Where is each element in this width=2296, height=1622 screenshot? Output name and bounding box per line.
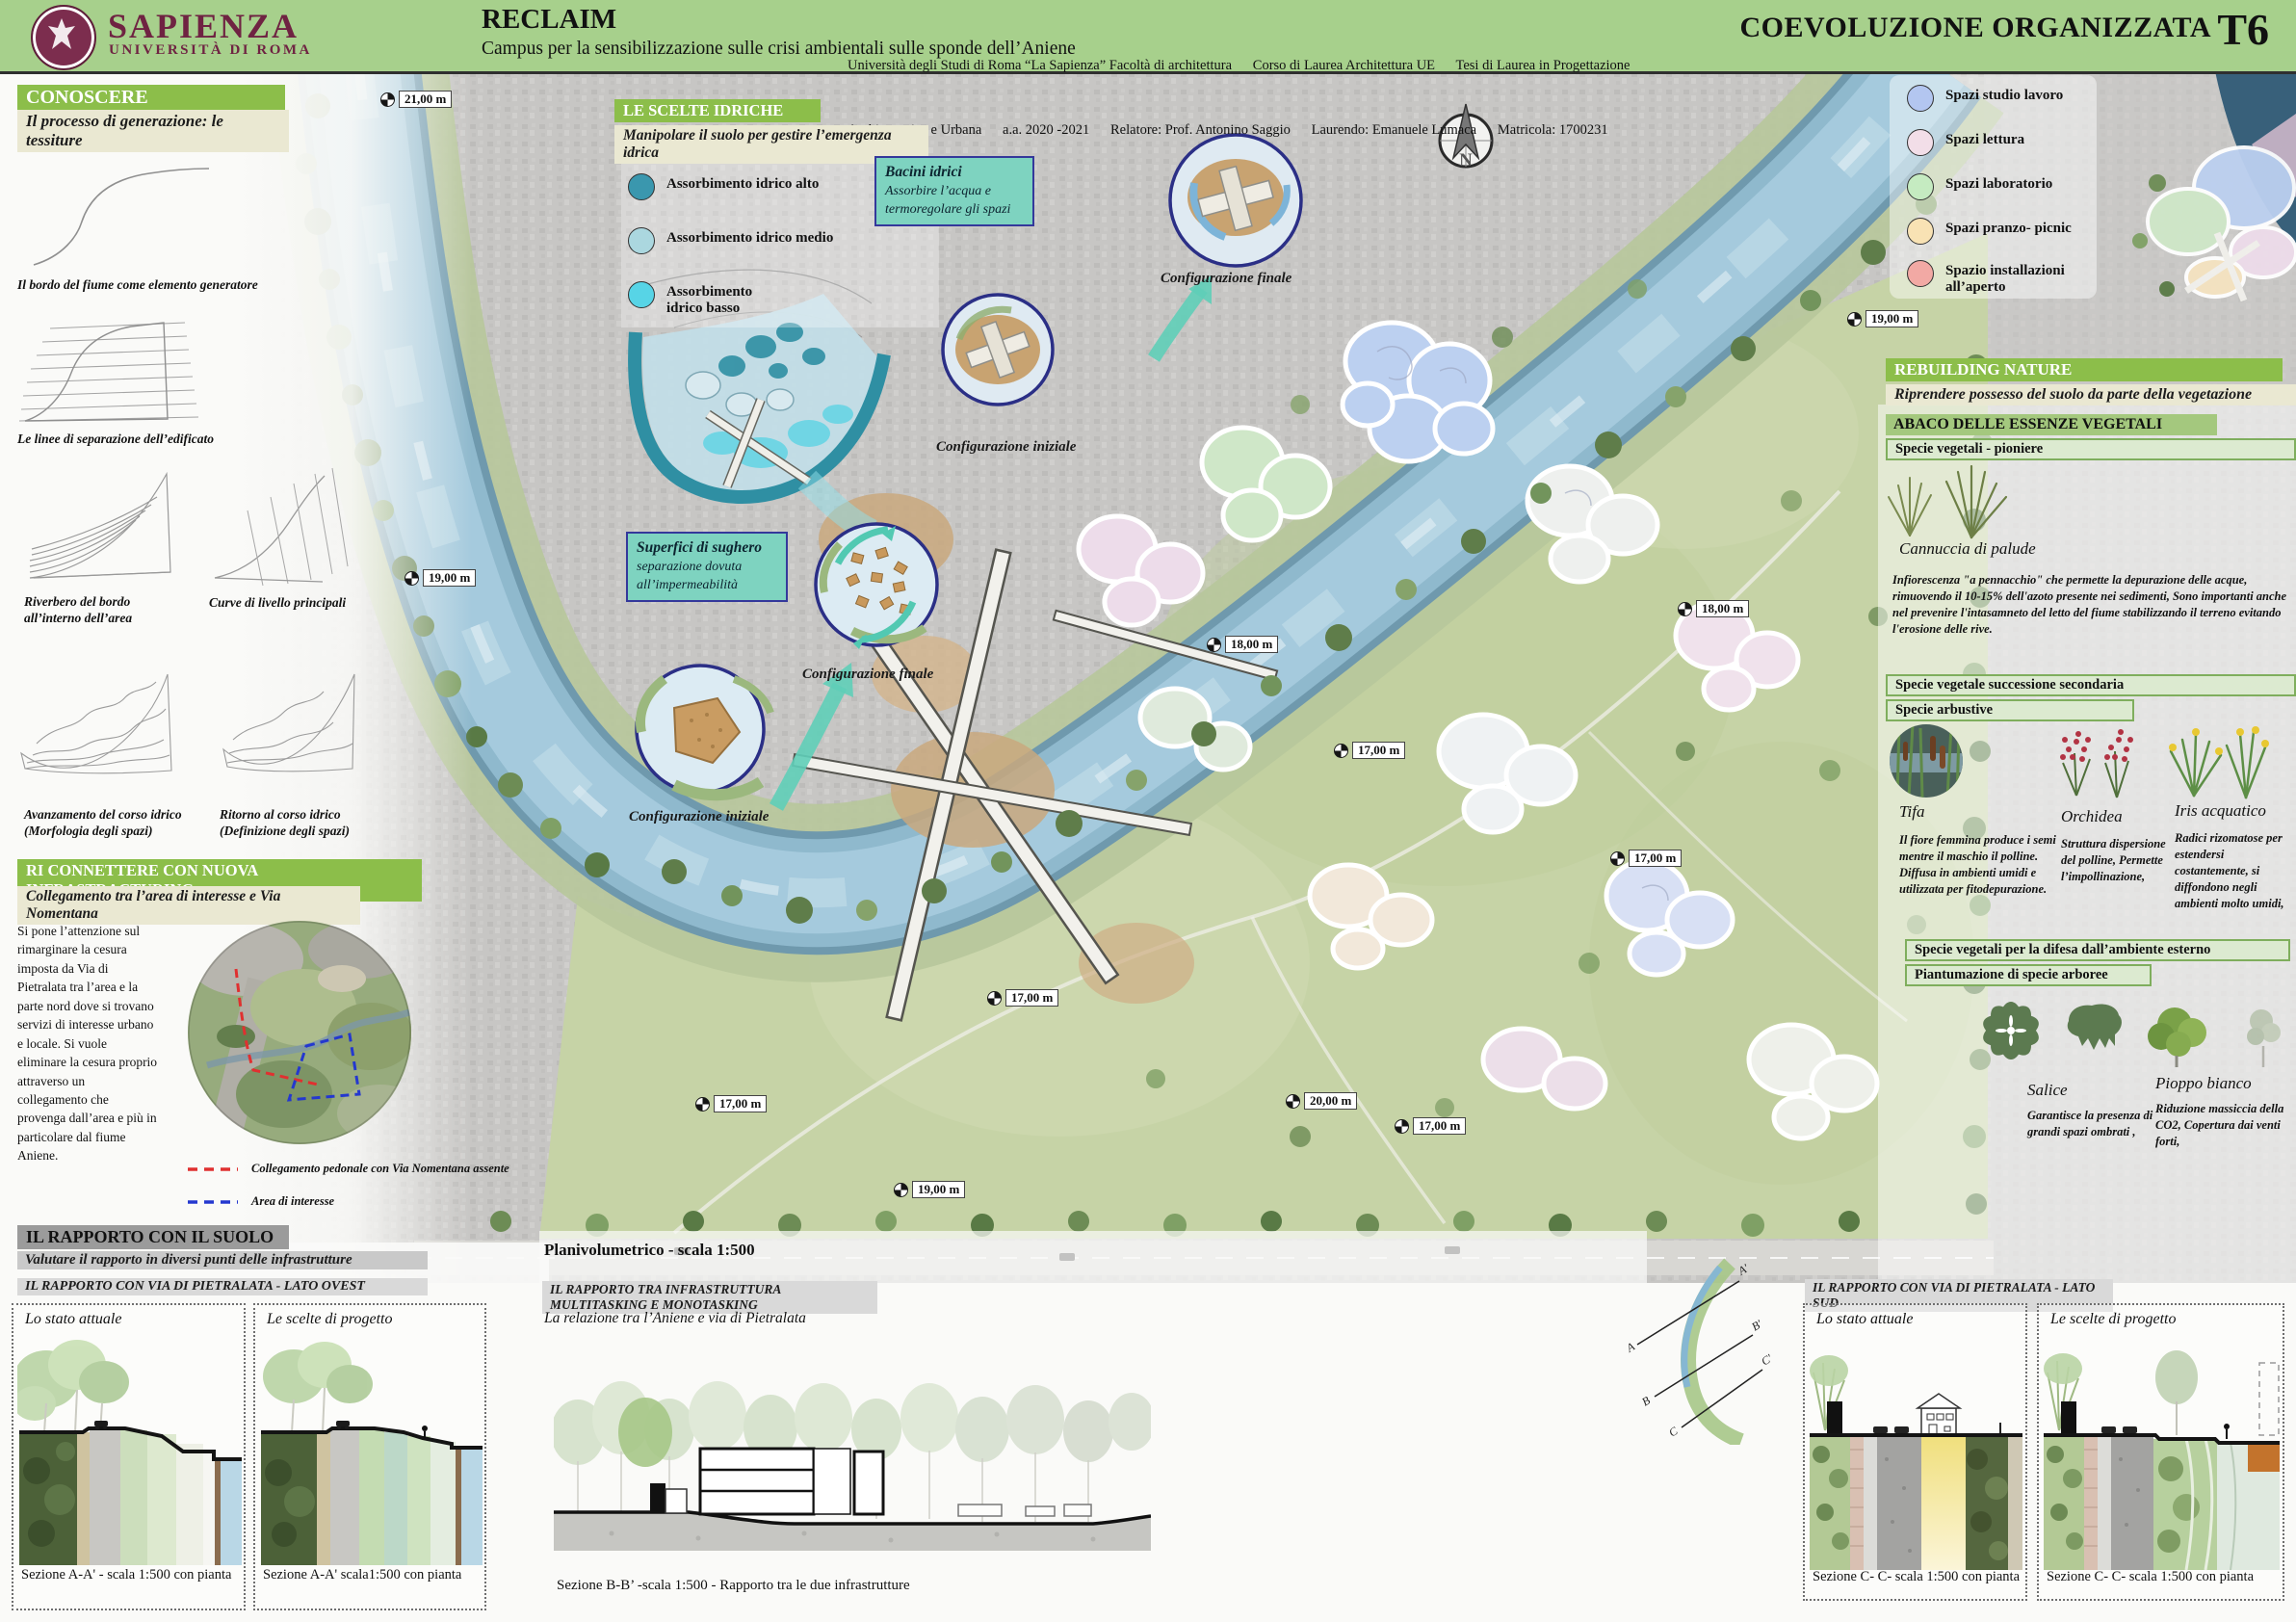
survey-point-icon: [987, 991, 1002, 1006]
elevation-marker: 18,00 m: [1207, 636, 1278, 653]
tree-name: Salice: [2027, 1081, 2068, 1100]
credits-line2: Architettonica e Urbana a.a. 2020 -2021 …: [848, 119, 1630, 141]
config-circle-basin-initial: [943, 295, 1053, 405]
legend-spazi-laboratorio: Spazi laboratorio: [1907, 173, 2052, 200]
section-box-cc-project: Le scelte di progetto: [2037, 1303, 2284, 1601]
header-bar: SAPIENZA UNIVERSITÀ DI ROMA RECLAIM Camp…: [0, 0, 2296, 74]
legend-absorption-high: Assorbimento idrico alto: [628, 173, 819, 200]
legend-area-of-interest: Area di interesse: [188, 1194, 334, 1209]
elevation-marker: 17,00 m: [1610, 850, 1682, 867]
high-absorption-dot-icon: [628, 173, 655, 200]
svg-text:C: C: [1666, 1424, 1681, 1440]
sketch-label: Ritorno al corso idrico (Definizione deg…: [220, 807, 378, 840]
soil-relation-title: IL RAPPORTO CON IL SUOLO: [17, 1225, 289, 1249]
sketch-label: Avanzamento del corso idrico (Morfologia…: [24, 807, 207, 840]
iris-plant-icon: [2165, 724, 2271, 799]
orchidea-plant-icon: [2051, 724, 2143, 799]
connect-body-text: Si pone l’attenzione sul rimarginare la …: [17, 922, 158, 1165]
connect-section-subtitle: Collegamento tra l’area di interesse e V…: [17, 886, 360, 925]
config-label: Configurazione finale: [802, 667, 956, 683]
sketch-separation-lines: [12, 313, 214, 427]
legend-spazi-lettura: Spazi lettura: [1907, 129, 2024, 156]
legend-absorption-medium: Assorbimento idrico medio: [628, 227, 833, 254]
species-name: Orchidea: [2061, 807, 2123, 826]
logo-wordmark: SAPIENZA: [108, 6, 299, 46]
medium-absorption-dot-icon: [628, 227, 655, 254]
svg-text:B': B': [1749, 1317, 1764, 1333]
config-label: Configurazione finale: [1161, 271, 1324, 287]
survey-point-icon: [1334, 744, 1348, 758]
section-box-aa-state: Lo stato attuale Sezione A-A' - scala 1:…: [12, 1303, 246, 1610]
survey-point-icon: [380, 92, 395, 107]
pranzo-dot-icon: [1907, 218, 1934, 245]
center-subtitle: La relazione tra l’Aniene e via di Pietr…: [544, 1310, 806, 1327]
tifa-photo-icon: [1890, 724, 1963, 798]
sketch-reverb: [24, 464, 180, 588]
bacini-idrici-box: Bacini idrici Assorbire l’acqua e termor…: [874, 156, 1034, 226]
center-caption: Sezione B-B’ -scala 1:500 - Rapporto tra…: [557, 1578, 910, 1594]
shrub-title: Specie arbustive: [1886, 699, 2134, 721]
board-title: COEVOLUZIONE ORGANIZZATA: [1739, 12, 2211, 44]
sketch-water-advance: [17, 667, 179, 780]
elevation-marker: 17,00 m: [987, 989, 1058, 1007]
species-name: Tifa: [1899, 802, 1924, 822]
section-key-diagram: A B C A' B' C': [1626, 1252, 1780, 1445]
project-title: RECLAIM: [482, 4, 616, 36]
legend-spazi-studio: Spazi studio lavoro: [1907, 85, 2063, 112]
elevation-marker: 19,00 m: [404, 569, 476, 587]
laboratorio-dot-icon: [1907, 173, 1934, 200]
survey-point-icon: [1847, 312, 1862, 327]
lettura-dot-icon: [1907, 129, 1934, 156]
soil-relation-subtitle: Valutare il rapporto in diversi punti de…: [17, 1251, 428, 1269]
config-label: Configurazione iniziale: [629, 809, 793, 825]
installazioni-dot-icon: [1907, 260, 1934, 287]
survey-point-icon: [404, 571, 419, 586]
abaco-title: ABACO DELLE ESSENZE VEGETALI: [1886, 414, 2217, 435]
svg-text:C': C': [1759, 1351, 1775, 1369]
elevation-marker: 17,00 m: [1334, 742, 1405, 759]
species-desc: Radici rizomatose per estendersi costant…: [2175, 830, 2290, 911]
tree-species-icons: [1972, 992, 2290, 1069]
elevation-marker: 17,00 m: [695, 1095, 767, 1112]
svg-text:A: A: [1626, 1339, 1637, 1355]
sketch-river-edge: [24, 164, 217, 272]
pioneer-title: Specie vegetali - pioniere: [1886, 438, 2296, 460]
section-drawing-cc-state: [1808, 1334, 2024, 1575]
sughero-box: Superfici di sughero separazione dovuta …: [626, 532, 788, 602]
aerial-inset-circle: [188, 921, 411, 1144]
west-title: IL RAPPORTO CON VIA DI PIETRALATA - LATO…: [17, 1278, 428, 1295]
survey-point-icon: [695, 1097, 710, 1112]
planting-title: Piantumazione di specie arboree: [1905, 964, 2152, 986]
section-drawing-aa-project: [259, 1336, 484, 1567]
legend-absorption-low: Assorbimento idrico basso: [628, 281, 782, 317]
cannuccia-plant-icon: [1883, 464, 2018, 539]
legend-spazio-installazioni: Spazio installazioni all’aperto: [1907, 260, 2090, 296]
survey-point-icon: [1610, 851, 1625, 866]
elevation-marker: 19,00 m: [1847, 310, 1918, 327]
cannuccia-desc: Infiorescenza "a pennacchio" che permett…: [1892, 572, 2295, 638]
elevation-marker: 17,00 m: [1395, 1117, 1466, 1135]
survey-point-icon: [1286, 1094, 1300, 1109]
svg-text:B: B: [1639, 1393, 1653, 1408]
cannuccia-name: Cannuccia di palude: [1899, 539, 2036, 559]
elevation-marker: 18,00 m: [1678, 600, 1749, 617]
section-drawing-bb: [554, 1341, 1151, 1570]
survey-point-icon: [1678, 602, 1692, 616]
survey-point-icon: [894, 1183, 908, 1197]
low-absorption-dot-icon: [628, 281, 655, 308]
credits-line1: Università degli Studi di Roma “La Sapie…: [848, 55, 1630, 76]
elevation-marker: 20,00 m: [1286, 1092, 1357, 1110]
sapienza-logo: [31, 5, 96, 70]
species-name: Iris acquatico: [2175, 801, 2266, 821]
section-drawing-aa-state: [17, 1336, 244, 1567]
presentation-board: N SAPIENZA: [0, 0, 2296, 1622]
plan-title: Planivolumetrico - scala 1:500: [544, 1241, 755, 1260]
logo-sub-wordmark: UNIVERSITÀ DI ROMA: [109, 42, 312, 59]
sketch-label: Curve di livello principali: [209, 595, 355, 612]
tree-desc: Garantisce la presenza di grandi spazi o…: [2027, 1108, 2160, 1140]
center-title: IL RAPPORTO TRA INFRASTRUTTURA MULTITASK…: [542, 1281, 877, 1314]
secondary-title: Specie vegetale successione secondaria: [1886, 674, 2296, 696]
nature-section-subtitle: Riprendere possesso del suolo da parte d…: [1886, 384, 2296, 405]
svg-text:A': A': [1735, 1261, 1751, 1278]
sketch-label: Riverbero del bordo all’interno dell’are…: [24, 594, 170, 627]
sketch-label: Il bordo del fiume come elemento generat…: [17, 277, 299, 294]
elevation-marker: 21,00 m: [380, 91, 452, 108]
board-code: T6: [2217, 4, 2269, 55]
elevation-marker: 19,00 m: [894, 1181, 965, 1198]
species-desc: Struttura dispersione del polline, Perme…: [2061, 836, 2169, 885]
survey-point-icon: [1207, 638, 1221, 652]
soil-section-subtitle: Il processo di generazione: le tessiture: [17, 110, 289, 152]
defense-title: Specie vegetali per la difesa dall’ambie…: [1905, 939, 2290, 961]
sketch-water-return: [220, 667, 356, 780]
legend-pedestrian-link: Collegamento pedonale con Via Nomentana …: [188, 1162, 509, 1176]
survey-point-icon: [1395, 1119, 1409, 1134]
nature-section-title: REBUILDING NATURE: [1886, 358, 2283, 381]
legend-spazi-pranzo: Spazi pranzo- picnic: [1907, 218, 2072, 245]
sketch-label: Le linee di separazione dell’edificato: [17, 432, 268, 448]
sketch-contours: [207, 464, 352, 588]
tree-desc: Riduzione massiccia della CO2, Copertura…: [2155, 1101, 2296, 1150]
red-dash-icon: [188, 1164, 238, 1174]
studio-dot-icon: [1907, 85, 1934, 112]
config-label: Configurazione iniziale: [936, 439, 1100, 456]
eagle-icon: [46, 16, 77, 55]
species-desc: Il fiore femmina produce i semi mentre i…: [1899, 832, 2061, 898]
blue-dash-icon: [188, 1197, 238, 1207]
water-section-title: LE SCELTE IDRICHE: [614, 99, 821, 122]
section-box-cc-state: Lo stato attuale: [1803, 1303, 2027, 1601]
tree-name: Pioppo bianco: [2155, 1074, 2252, 1093]
section-drawing-cc-project: [2042, 1334, 2282, 1575]
section-box-aa-project: Le scelte di progetto Sezione A-A' scala…: [253, 1303, 486, 1610]
